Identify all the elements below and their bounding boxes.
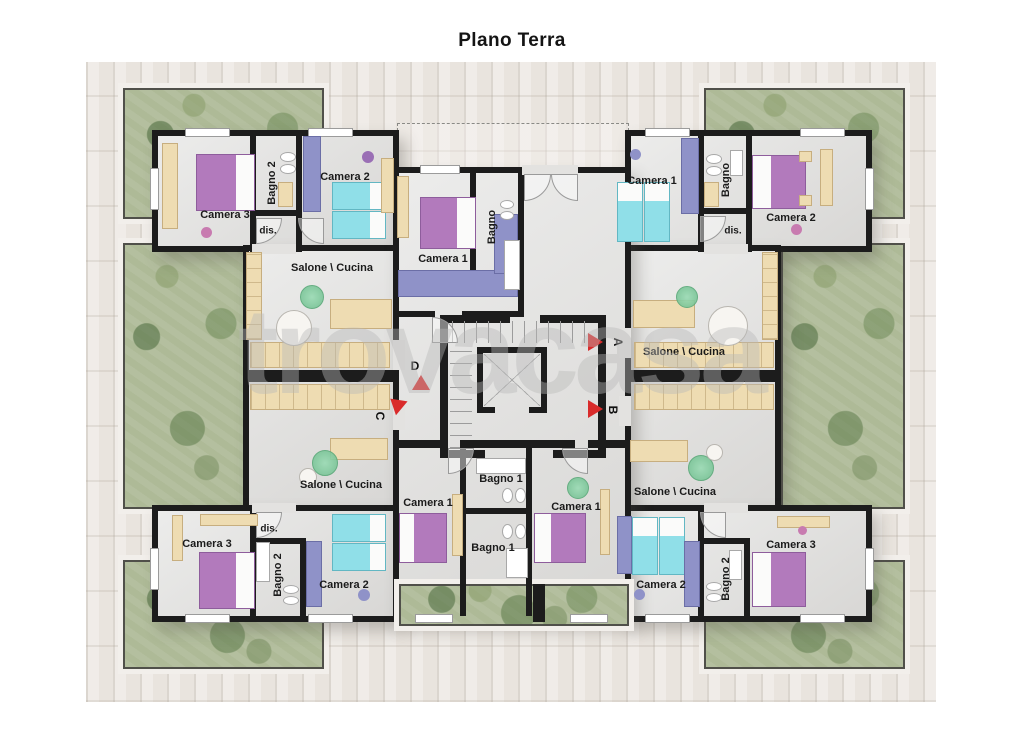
elevator-shaft	[484, 354, 540, 406]
wall	[698, 538, 750, 544]
round-table	[276, 310, 312, 346]
sofa	[630, 440, 688, 462]
toilet	[515, 524, 526, 539]
elevator-wall	[529, 407, 547, 413]
room-label-bagno2-bl: Bagno 2	[272, 553, 284, 596]
desk	[600, 489, 610, 555]
kitchen-counter	[250, 384, 390, 410]
window	[865, 548, 874, 590]
shelf	[200, 514, 258, 526]
wall	[744, 538, 750, 622]
room-label-salone-br: Salone \ Cucina	[634, 486, 716, 498]
wall	[533, 584, 545, 622]
desk	[452, 494, 463, 556]
desk	[397, 176, 409, 238]
sink	[502, 488, 513, 503]
entrance-letter-b: B	[606, 406, 620, 415]
room-label-dis-bl: dis.	[260, 524, 277, 535]
sofa	[330, 299, 392, 329]
plant	[567, 477, 589, 499]
room-label-bagno1-bottom-bc: Bagno 1	[471, 542, 514, 554]
plant	[300, 285, 324, 309]
room-label-bagno2-br: Bagno 2	[720, 557, 732, 600]
plant	[676, 286, 698, 308]
kitchen-counter	[246, 252, 262, 340]
shower	[256, 542, 270, 582]
single-bed	[332, 543, 386, 571]
entrance-canopy-outline	[397, 123, 629, 171]
entrance-letter-a: A	[611, 338, 625, 347]
desk	[381, 158, 394, 213]
bath-cabinet	[278, 182, 293, 207]
wardrobe	[306, 541, 322, 607]
double-bed	[534, 513, 586, 563]
stool	[362, 151, 374, 163]
single-bed	[644, 182, 670, 242]
room-label-bagno-tc: Bagno	[486, 210, 498, 244]
door-opening	[393, 340, 405, 370]
garden-left	[123, 243, 247, 509]
door-opening	[704, 244, 748, 254]
wall	[526, 445, 532, 616]
wall	[698, 208, 752, 214]
double-bed	[196, 154, 255, 211]
stool	[630, 149, 641, 160]
garden-right	[781, 243, 905, 509]
double-bed	[752, 155, 806, 209]
sink	[502, 524, 513, 539]
stool	[798, 526, 807, 535]
room-label-salone-bl: Salone \ Cucina	[300, 479, 382, 491]
wall	[393, 311, 435, 317]
desk	[162, 143, 178, 229]
stair-flight	[450, 346, 472, 448]
window	[420, 165, 460, 174]
single-bed	[332, 514, 386, 542]
toilet	[500, 211, 514, 220]
sofa	[330, 438, 388, 460]
window	[800, 614, 845, 623]
room-label-bagno2-tl: Bagno 2	[266, 161, 278, 204]
window	[645, 614, 690, 623]
single-bed	[332, 211, 386, 239]
entrance-arrow-d	[412, 375, 430, 390]
room-label-camera1-right-bc: Camera 1	[551, 501, 601, 513]
elevator-wall	[477, 407, 495, 413]
double-bed	[752, 552, 806, 607]
window	[185, 614, 230, 623]
wardrobe	[617, 516, 632, 574]
stool	[201, 227, 212, 238]
window	[150, 548, 159, 590]
round-table	[706, 444, 723, 461]
room-label-camera1-tr: Camera 1	[627, 175, 677, 187]
elevator-wall	[477, 347, 547, 353]
double-bed	[399, 513, 447, 563]
nightstand	[799, 151, 812, 162]
single-bed	[632, 517, 658, 575]
room-label-dis-tr: dis.	[724, 226, 741, 237]
stool	[791, 224, 802, 235]
kitchen-counter	[762, 252, 778, 340]
toilet	[280, 164, 296, 174]
wardrobe	[681, 138, 699, 214]
window	[150, 168, 159, 210]
window	[415, 614, 453, 623]
elevator-wall	[477, 347, 483, 413]
single-bed	[617, 182, 643, 242]
room-label-bagno-tr: Bagno	[720, 163, 732, 197]
double-bed	[199, 552, 255, 609]
round-table	[708, 306, 748, 346]
elevator-wall	[541, 347, 547, 413]
bathtub	[476, 458, 526, 474]
room-label-camera3-bl: Camera 3	[182, 538, 232, 550]
wall	[393, 440, 448, 448]
wall	[588, 440, 631, 448]
room-label-camera3-br: Camera 3	[766, 539, 816, 551]
room-label-salone-tr: Salone \ Cucina	[643, 346, 725, 358]
wall	[250, 210, 302, 216]
page-title: Plano Terra	[0, 30, 1024, 52]
room-label-camera2-tl: Camera 2	[320, 171, 370, 183]
window	[645, 128, 690, 137]
room-label-dis-tl: dis.	[259, 226, 276, 237]
wall	[460, 440, 575, 448]
wall	[243, 370, 399, 382]
wardrobe	[684, 541, 700, 607]
entrance-letter-d: D	[411, 359, 420, 373]
room-label-camera1-tc: Camera 1	[418, 253, 468, 265]
floor-plan: Plano Terra	[0, 0, 1024, 729]
desk	[820, 149, 833, 206]
room-label-salone-tl: Salone \ Cucina	[291, 262, 373, 274]
toilet	[515, 488, 526, 503]
bath-cabinet	[704, 182, 719, 207]
kitchen-counter	[250, 342, 390, 368]
wall	[462, 508, 532, 514]
double-bed	[420, 197, 476, 249]
toilet	[283, 596, 299, 605]
room-label-camera2-bl: Camera 2	[319, 579, 369, 591]
wardrobe	[398, 270, 518, 297]
window	[865, 168, 874, 210]
nightstand	[799, 195, 812, 206]
window	[308, 614, 353, 623]
room-label-camera3-tl: Camera 3	[200, 209, 250, 221]
stair-flight	[452, 321, 594, 343]
room-label-camera1-left-bc: Camera 1	[403, 497, 453, 509]
room-label-camera2-br: Camera 2	[636, 579, 686, 591]
single-bed	[659, 517, 685, 575]
window	[185, 128, 230, 137]
sink	[280, 152, 296, 162]
room-label-bagno1-top-bc: Bagno 1	[479, 473, 522, 485]
single-bed	[332, 182, 386, 210]
sink	[500, 200, 514, 209]
kitchen-counter	[634, 384, 774, 410]
shower	[504, 240, 520, 290]
room-label-camera2-tr: Camera 2	[766, 212, 816, 224]
door-opening	[619, 396, 631, 426]
entrance-arrow-a	[588, 333, 603, 351]
entrance-letter-c: C	[373, 412, 387, 421]
sink	[283, 585, 299, 594]
wardrobe	[303, 136, 321, 212]
window	[570, 614, 608, 623]
entrance-arrow-b	[588, 400, 603, 418]
wall	[296, 130, 302, 252]
window	[800, 128, 845, 137]
wall	[625, 370, 781, 382]
